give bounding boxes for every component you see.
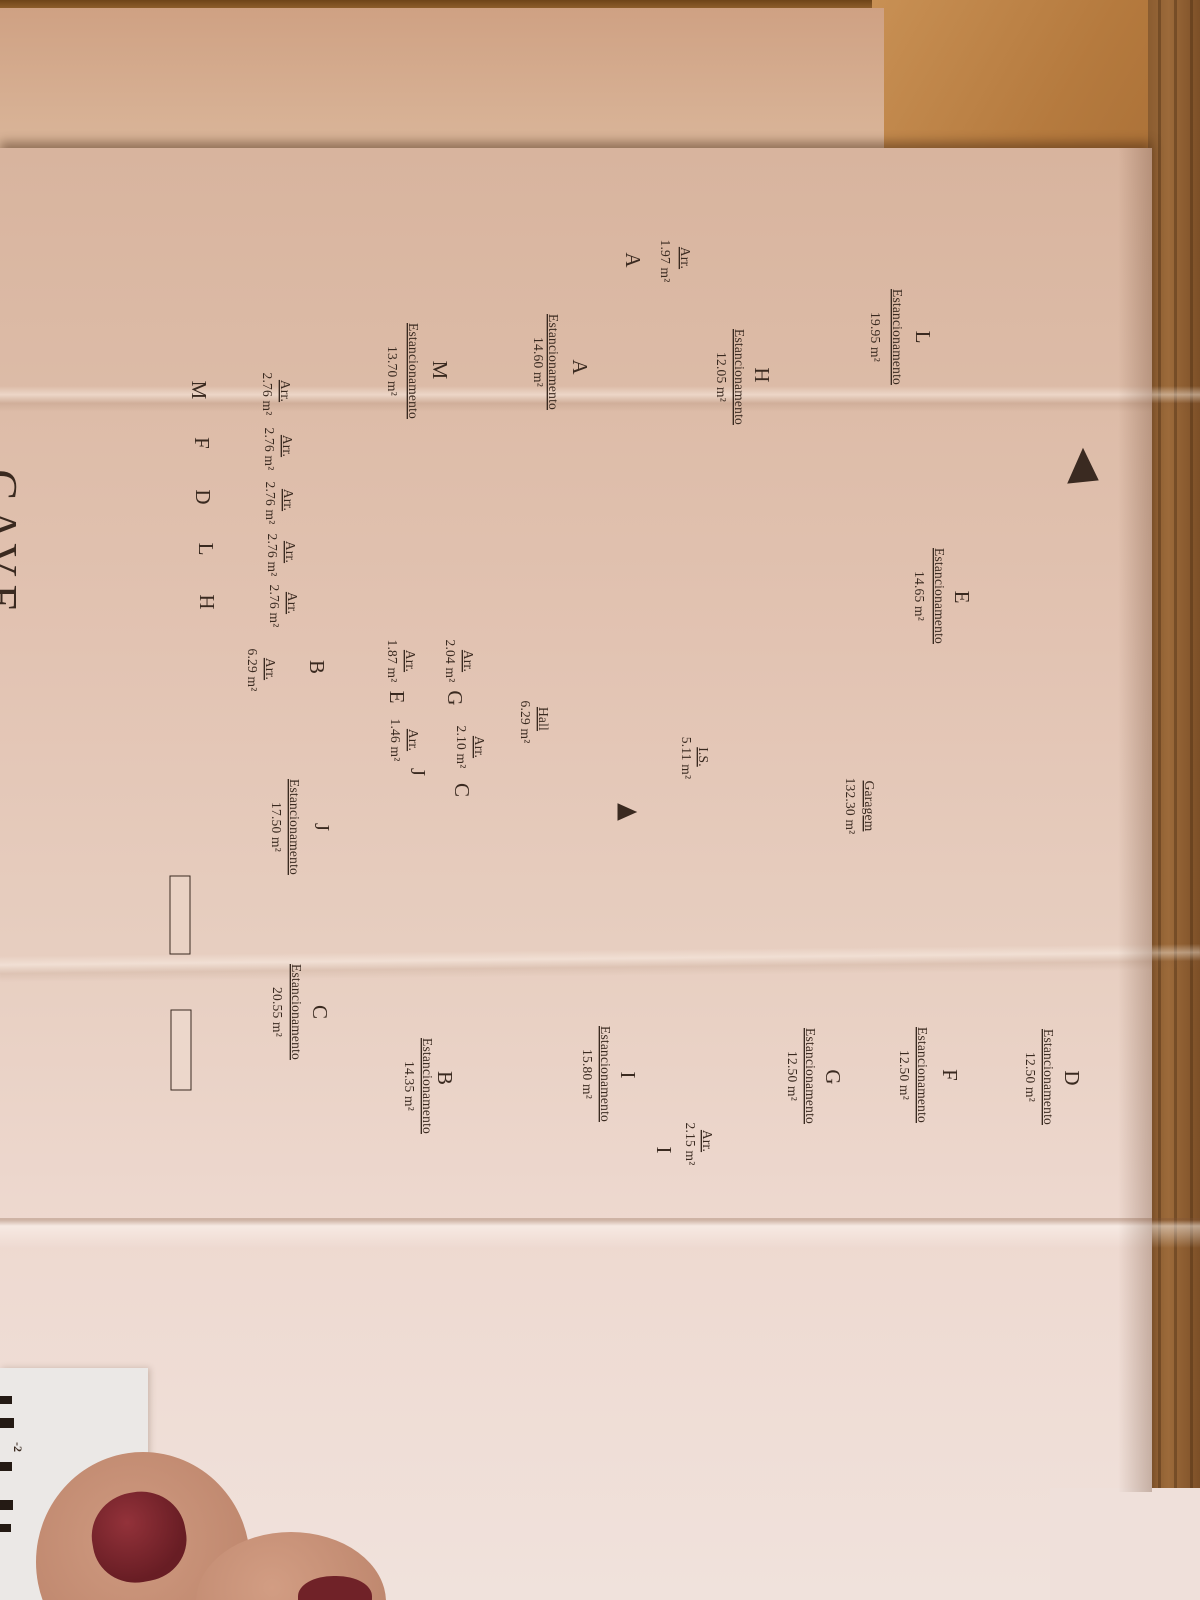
storage-L-area: 2.76 m²	[265, 534, 280, 577]
parking-G-letter: G	[821, 1069, 845, 1084]
window-band	[310, 213, 522, 232]
storage-F-label: Arr.	[280, 435, 295, 457]
storage-G-letter: G	[443, 690, 467, 705]
sink-icon	[672, 641, 702, 662]
parking-C-area: 20.55 m²	[270, 987, 285, 1037]
parking-L-letter: L	[911, 331, 935, 344]
parking-M-letter: M	[428, 361, 452, 380]
parking-E-area: 14.65 m²	[912, 571, 927, 621]
parking-A-area: 14.60 m²	[531, 337, 546, 387]
parking-B-area: 14.35 m²	[402, 1061, 417, 1111]
storage-H-label: Arr.	[285, 592, 300, 614]
parking-D-letter: D	[1060, 1070, 1084, 1085]
parking-L-label: Estancionamento	[890, 289, 905, 385]
outer-walls	[100, 206, 1129, 1184]
parking-M-label: Estancionamento	[406, 323, 421, 419]
parking-E-label: Estancionamento	[932, 548, 947, 644]
plan-labels: CAVE -2 L M A H E J C B I G F D Estancio…	[0, 240, 1084, 1452]
storage-D-letter: D	[191, 489, 215, 504]
parking-D-area: 12.50 m²	[1023, 1052, 1038, 1102]
storage-E-letter: E	[385, 691, 409, 704]
parking-L-area: 19.95 m²	[868, 312, 883, 362]
storage-L-letter: L	[194, 543, 218, 556]
hall-label: Hall	[536, 707, 551, 731]
storage-I-area: 2.15 m²	[683, 1123, 698, 1166]
storage-J-C-walls	[340, 720, 531, 810]
parking-H-letter: H	[750, 367, 774, 382]
parking-J-label: Estancionamento	[287, 779, 302, 875]
parking-B-letter: B	[433, 1071, 457, 1085]
storage-A-letter: A	[621, 252, 645, 268]
photo-of-floor-plan: CAVE -2 L M A H E J C B I G F D Estancio…	[0, 0, 1200, 1600]
storage-M-letter: M	[187, 381, 211, 400]
parking-I-area: 15.80 m²	[580, 1049, 595, 1099]
storage-H-letter: H	[195, 594, 219, 609]
garage-label: Garagem	[862, 781, 877, 832]
parking-F-label: Estancionamento	[915, 1027, 930, 1123]
core-block	[480, 624, 730, 844]
storage-J-letter: J	[406, 768, 430, 776]
storage-A-area: 1.97 m²	[658, 240, 673, 283]
storage-D-label: Arr.	[281, 489, 296, 511]
parking-D-label: Estancionamento	[1041, 1029, 1056, 1125]
parking-G-label: Estancionamento	[803, 1028, 818, 1124]
storage-I-label: Arr.	[700, 1130, 715, 1152]
wc-door-arc	[643, 659, 678, 694]
stall-H-walls	[680, 290, 836, 493]
elevator-shaft	[558, 700, 643, 780]
storage-M-label: Arr.	[278, 380, 293, 402]
parking-M-area: 13.70 m²	[385, 346, 400, 396]
storage-B-letter: B	[305, 660, 329, 674]
parking-G-area: 12.50 m²	[785, 1051, 800, 1101]
parking-C-letter: C	[308, 1005, 332, 1019]
storage-M-area: 2.76 m²	[260, 373, 275, 416]
stair-risers	[552, 784, 648, 836]
parking-J-area: 17.50 m²	[269, 802, 284, 852]
parking-F-letter: F	[938, 1069, 962, 1081]
floor-title: CAVE	[0, 469, 27, 620]
storage-C-label: Arr.	[472, 736, 487, 758]
parking-J-letter: J	[310, 823, 334, 831]
storage-B-area: 6.29 m²	[245, 649, 260, 692]
storage-E-area: 1.87 m²	[385, 640, 400, 683]
ramp-arrow-icon	[1068, 449, 1103, 553]
parking-B-label: Estancionamento	[420, 1038, 435, 1134]
storage-D-area: 2.76 m²	[263, 482, 278, 525]
parking-F-area: 12.50 m²	[897, 1050, 912, 1100]
storage-B-label: Arr.	[263, 658, 278, 680]
storage-J-label: Arr.	[406, 729, 421, 751]
storage-J-area: 1.46 m²	[388, 719, 403, 762]
storage-F-area: 2.76 m²	[262, 428, 277, 471]
parking-E-letter: E	[950, 591, 974, 604]
window-band	[868, 243, 1055, 264]
angled-stall-lines	[258, 222, 886, 706]
elevator-car	[574, 712, 638, 770]
parking-circles	[304, 321, 1089, 1095]
hall-door-arc	[511, 637, 570, 696]
parking-A-letter: A	[568, 359, 592, 375]
floor-plan-drawing: CAVE -2 L M A H E J C B I G F D Estancio…	[0, 0, 1200, 1600]
parking-I-label: Estancionamento	[598, 1026, 613, 1122]
storage-I-letter: I	[652, 1147, 676, 1154]
stair-break-mark	[640, 798, 658, 820]
storage-I-walls	[613, 1121, 741, 1170]
storage-A-label: Arr.	[678, 247, 693, 269]
wc-label: I.S.	[696, 747, 711, 767]
corner-text-fragment: -2	[11, 1442, 25, 1452]
storage-H-area: 2.76 m²	[267, 585, 282, 628]
parking-I-letter: I	[616, 1072, 640, 1079]
storage-G-label: Arr.	[461, 650, 476, 672]
storage-C-letter: C	[450, 783, 474, 797]
parking-C-label: Estancionamento	[289, 964, 304, 1060]
hall-area: 6.29 m²	[518, 701, 533, 744]
storage-E-label: Arr.	[403, 650, 418, 672]
garage-area: 132.30 m²	[843, 778, 858, 835]
storage-A-walls	[557, 241, 736, 303]
storage-L-label: Arr.	[283, 541, 298, 563]
parking-H-area: 12.05 m²	[714, 352, 729, 402]
parking-H-label: Estancionamento	[732, 329, 747, 425]
storage-C-area: 2.10 m²	[454, 726, 469, 769]
storage-G-area: 2.04 m²	[443, 640, 458, 683]
parking-A-label: Estancionamento	[546, 314, 561, 410]
storage-F-letter: F	[190, 437, 214, 449]
door-jambs	[318, 392, 336, 614]
wc-area: 5.11 m²	[679, 737, 694, 779]
